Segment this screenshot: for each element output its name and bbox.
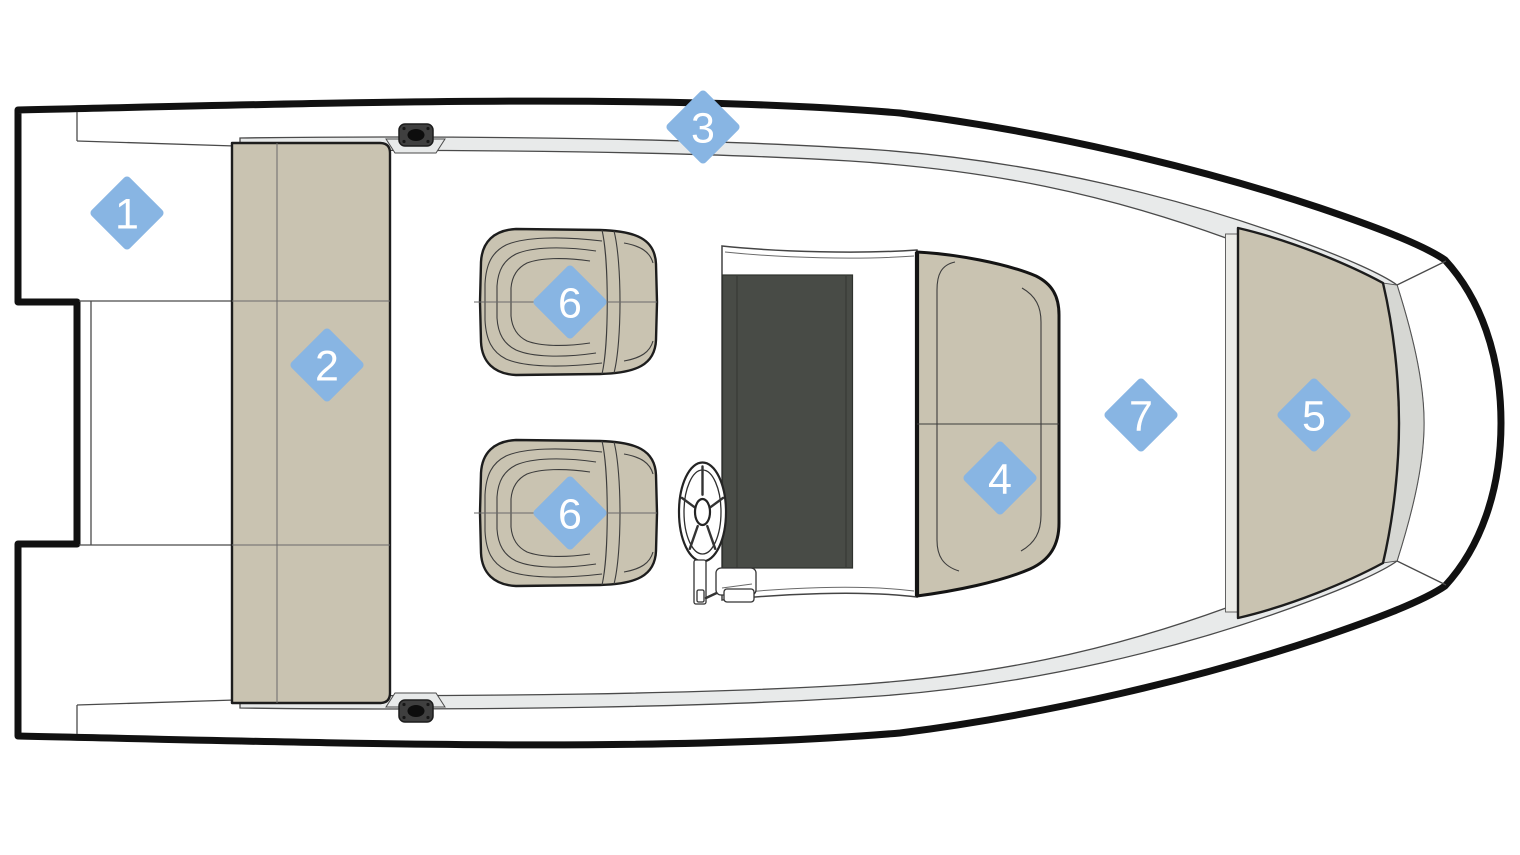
boat-deck-plan-page: 12345667 [0, 0, 1520, 855]
boat-deck-plan: 12345667 [0, 0, 1520, 855]
aft-bench [232, 143, 390, 703]
marker-number: 3 [691, 104, 715, 152]
steering-wheel [679, 463, 726, 562]
bow-backrest-strip [1226, 234, 1239, 612]
marker-number: 4 [988, 455, 1012, 503]
marker-number: 7 [1129, 392, 1153, 440]
marker-number: 5 [1302, 392, 1326, 440]
console-dash-panel [723, 275, 853, 568]
marker-number: 6 [558, 490, 582, 538]
helm-console [722, 246, 917, 600]
marker-number: 2 [315, 342, 339, 390]
marker-number: 1 [115, 190, 139, 238]
marker-number: 6 [558, 279, 582, 327]
console-seat [917, 252, 1059, 596]
